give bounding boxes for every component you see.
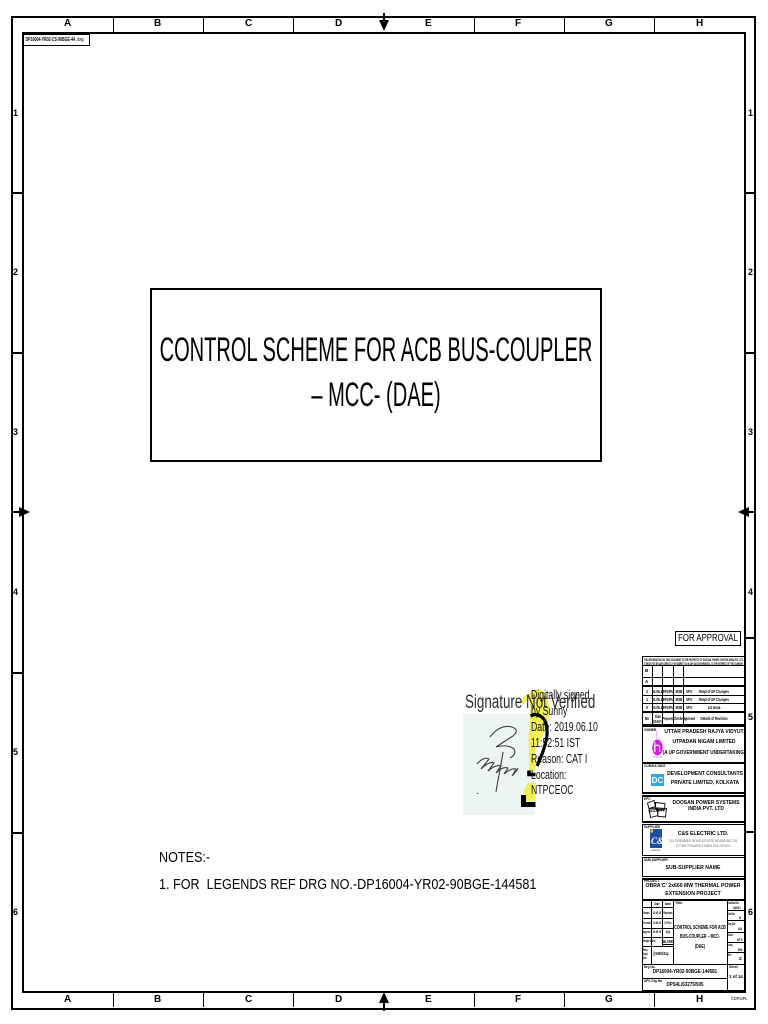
svg-text:C&S: C&S [651, 836, 663, 846]
svg-text:DOOSAN: DOOSAN [648, 807, 664, 813]
svg-text:DC: DC [652, 776, 664, 785]
svg-text:electric: electric [651, 848, 661, 852]
